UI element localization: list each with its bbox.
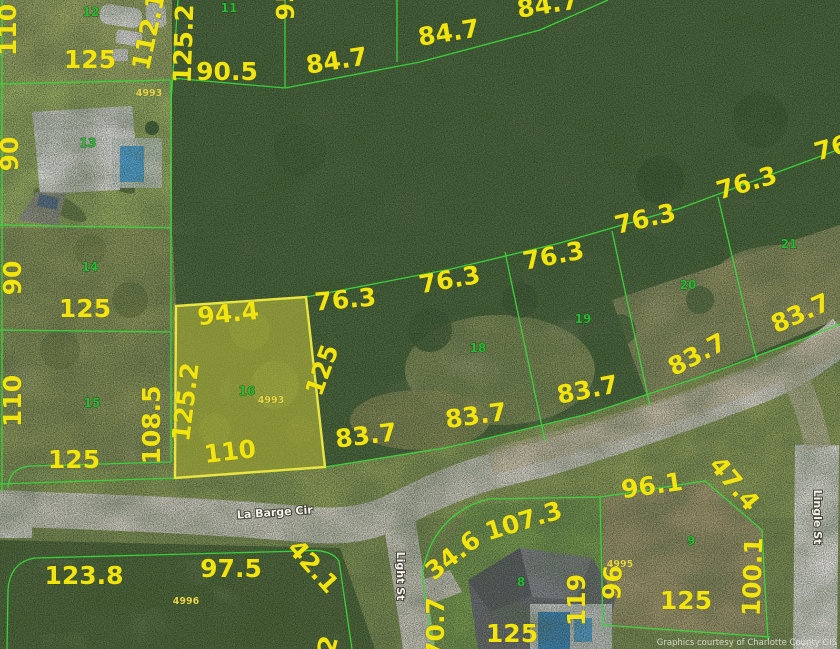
dimension-label: 90 [0, 137, 24, 172]
parcel-number-label: 15 [84, 396, 101, 410]
parcel-number-label: 14 [82, 260, 99, 274]
gis-watermark: Graphics courtesy of Charlotte County GI… [657, 638, 837, 648]
dimension-label: 76.3 [313, 282, 377, 316]
dimension-label: 110 [0, 4, 22, 56]
street-name-label: Light St [394, 552, 407, 601]
parcel-map[interactable]: 110125112.1125.290.59584.784.784.7909012… [0, 0, 840, 649]
dimension-label: 90 [0, 261, 27, 296]
parcel-number-label: 8 [517, 575, 525, 589]
dimension-label: 125 [64, 45, 116, 74]
parcel-number-label: 16 [239, 384, 256, 398]
parcel-number-label: 21 [781, 237, 798, 251]
dimension-label: 125 [59, 294, 111, 323]
parcel-number-label: 13 [80, 136, 97, 150]
dimension-label: 125 [486, 619, 538, 648]
parcel-number-label: 9 [687, 534, 695, 548]
dimension-label: 119 [562, 574, 591, 626]
lot-id-label: 4993 [136, 88, 162, 99]
lot-id-label: 4993 [258, 395, 284, 406]
dimension-label: 70.7 [421, 597, 450, 649]
lot-id-label: 4996 [173, 596, 200, 607]
parcel-number-label: 20 [680, 278, 697, 292]
dimension-label: 100.1 [737, 537, 769, 617]
dimension-label: 125.2 [168, 4, 200, 84]
dimension-label: 123.8 [44, 561, 123, 590]
dimension-label: 125 [660, 586, 712, 615]
dimension-label: 90.5 [196, 57, 258, 86]
dimension-label: 97.5 [200, 554, 262, 583]
map-viewport[interactable]: 110125112.1125.290.59584.784.784.7909012… [0, 0, 840, 649]
lot-id-label: 4995 [607, 559, 633, 570]
dimension-label: 95 [271, 0, 300, 20]
dimension-label: 125 [48, 445, 100, 474]
parcel-number-label: 12 [83, 5, 100, 19]
dimension-label: 108.5 [137, 385, 166, 464]
street-name-label: Lingle St [811, 490, 824, 545]
dimension-label: 110 [0, 375, 27, 427]
noise-overlay [0, 0, 840, 649]
parcel-number-label: 18 [470, 341, 487, 355]
parcel-number-label: 19 [575, 312, 592, 326]
parcel-number-label: 11 [221, 1, 238, 15]
